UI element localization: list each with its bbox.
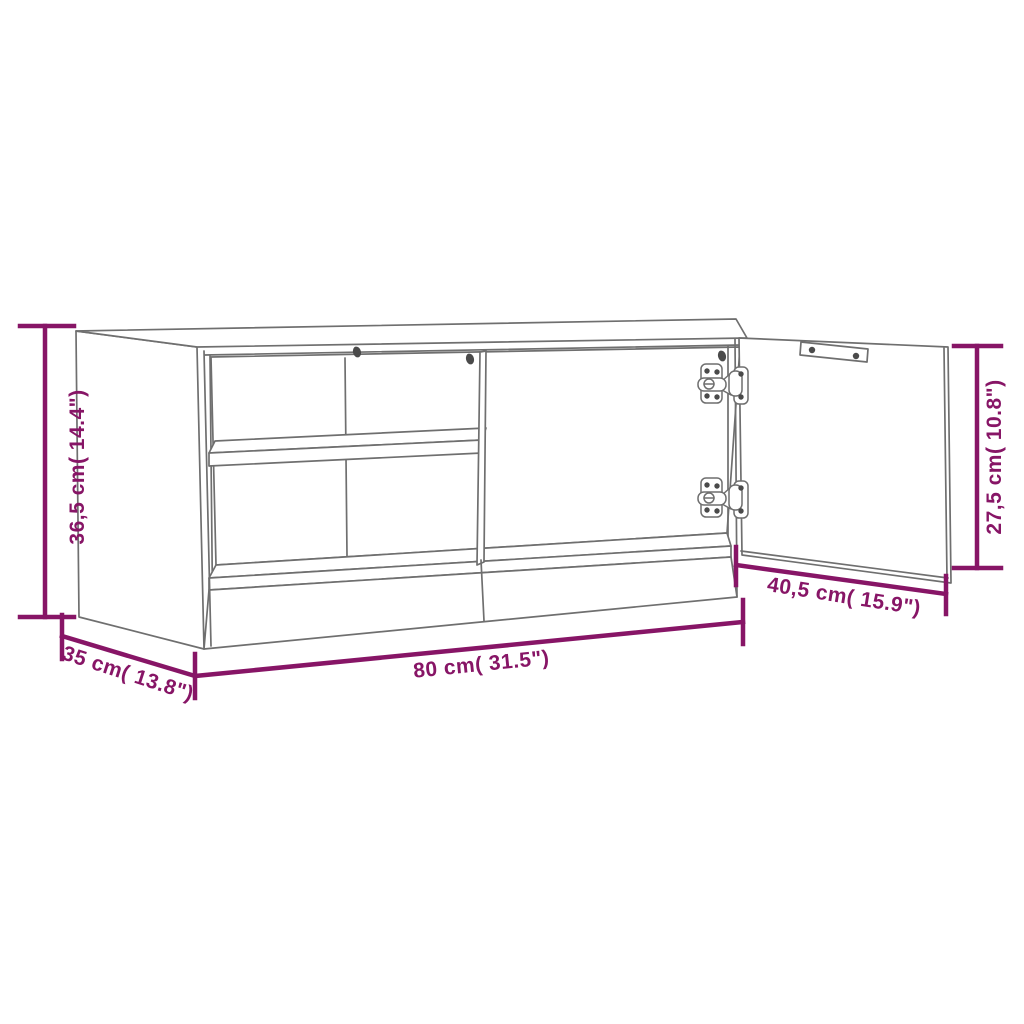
door-panel [739,338,951,583]
open-door [739,338,951,583]
product-dimension-image: 36,5 cm( 14.4") 35 cm( 13.8") 80 cm( 31.… [0,0,1024,1024]
height-dimension-label: 36,5 cm( 14.4") [66,389,89,544]
left-side-panel [76,331,204,649]
top-panel [76,319,747,347]
screw [853,353,859,359]
depth-dimension-label: 35 cm( 13.8") [59,642,196,706]
dimension-diagram: 36,5 cm( 14.4") 35 cm( 13.8") 80 cm( 31.… [0,0,1024,1024]
door-height-dimension-label: 27,5 cm( 10.8") [983,379,1006,534]
screw [809,347,815,353]
